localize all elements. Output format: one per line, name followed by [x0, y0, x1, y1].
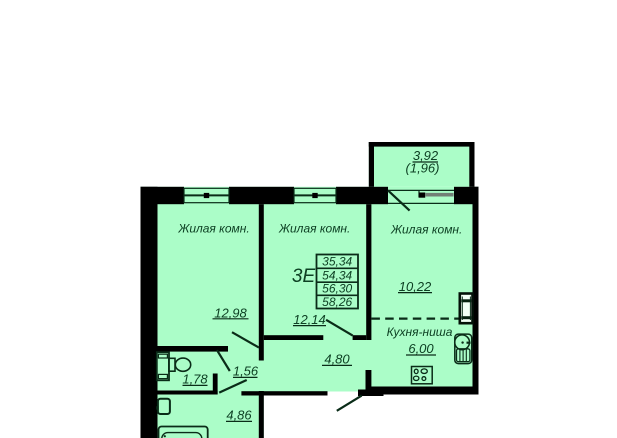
svg-text:10,22: 10,22 — [399, 279, 432, 294]
svg-text:12,98: 12,98 — [214, 305, 247, 320]
svg-text:6,00: 6,00 — [408, 341, 434, 356]
svg-text:54,34: 54,34 — [322, 269, 352, 283]
svg-text:1,56: 1,56 — [233, 364, 259, 379]
svg-text:4,80: 4,80 — [324, 352, 350, 367]
svg-text:1,78: 1,78 — [182, 372, 208, 387]
svg-text:(1,96): (1,96) — [406, 161, 440, 176]
svg-text:35,34: 35,34 — [322, 255, 352, 269]
svg-text:58,26: 58,26 — [322, 295, 352, 309]
svg-text:4,86: 4,86 — [226, 408, 252, 423]
svg-text:12,14: 12,14 — [293, 312, 326, 327]
svg-text:Жилая комн.: Жилая комн. — [390, 222, 462, 236]
svg-text:Жилая комн.: Жилая комн. — [177, 221, 249, 235]
svg-text:56,30: 56,30 — [322, 282, 352, 296]
svg-text:Жилая комн.: Жилая комн. — [278, 221, 350, 235]
svg-text:Кухня-ниша: Кухня-ниша — [387, 325, 453, 339]
svg-text:3Е: 3Е — [292, 266, 316, 287]
